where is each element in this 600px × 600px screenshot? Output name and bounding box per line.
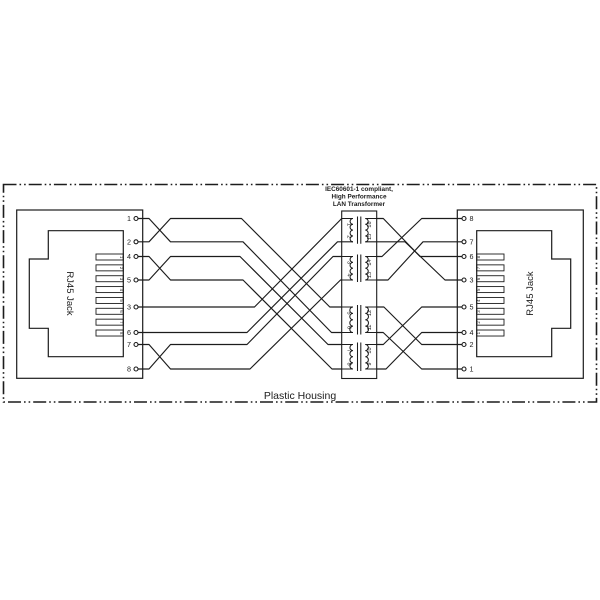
left-pin-number: 8 [127,365,131,374]
right-pin-terminal [462,255,466,259]
left-pin-terminal [134,255,138,259]
left-pin-number: 4 [127,252,131,261]
wire [138,219,342,308]
transformer-title-line1: IEC60601-1 compliant, [325,186,393,193]
core-lines [358,343,361,372]
right-pin-number: 2 [470,340,474,349]
right-pin-number: 8 [470,214,474,223]
transformer-pin-number: 3 [346,261,352,264]
core-lines [358,217,361,244]
right-pin-terminal [462,367,466,371]
core-lines [358,305,361,335]
right-jack-contacts: 87654321 [476,254,504,336]
right-pin-number: 7 [470,237,474,246]
transformer-windings: 12161534141356121178109 [342,217,377,372]
wire [138,257,342,345]
right-jack-label: RJ45 Jack [525,271,536,316]
transformer-pin-number: 12 [367,310,373,316]
transformer-title-line2: High Performance [331,193,386,200]
wire [377,333,462,370]
left-pin-terminal [134,278,138,282]
transformer-pin-number: 13 [367,272,373,278]
right-jack-connector-outline [477,231,571,357]
wire [377,219,462,257]
transformer-pin-number: 9 [367,362,373,365]
wire [138,257,342,370]
schematic-page: Plastic Housing IEC60601-1 compliant, Hi… [0,0,600,600]
plastic-housing-label: Plastic Housing [264,390,337,402]
left-pin-number: 5 [127,276,131,285]
right-pin-terminal [462,278,466,282]
right-pin-number: 6 [470,252,474,261]
wire [138,257,342,370]
wires [138,219,462,370]
left-jack-label: RJ45 Jack [64,271,75,316]
right-jack-pin-column: 87635421 [462,214,474,374]
left-pin-number: 6 [127,328,131,337]
left-pin-number: 3 [127,303,131,312]
transformer-pin-number: 7 [346,349,352,352]
left-jack [17,210,143,378]
transformer-pin-number: 10 [367,347,373,353]
right-pin-terminal [462,331,466,335]
transformer-pin-number: 14 [367,259,373,265]
right-pin-terminal [462,305,466,309]
transformer-pin-number: 1 [346,223,352,226]
core-lines [358,255,361,283]
right-pin-terminal [462,343,466,347]
wire [138,280,342,369]
left-pin-terminal [134,343,138,347]
wire [138,242,342,333]
wire [138,219,342,333]
right-pin-terminal [462,240,466,244]
transformer-title-line3: LAN Transformer [333,201,386,208]
transformer-pin-number: 11 [367,325,373,331]
wire [377,242,462,280]
left-jack-pin-column: 12453678 [127,214,138,374]
left-jack-connector-outline [29,231,123,357]
wire [138,219,342,308]
wiring-diagram: Plastic Housing IEC60601-1 compliant, Hi… [0,0,600,600]
left-pin-terminal [134,217,138,221]
left-pin-number: 1 [127,214,131,223]
wire [377,242,462,280]
plastic-housing-border [4,185,597,403]
left-pin-number: 2 [127,237,131,246]
transformer-pin-number: 15 [367,234,373,240]
transformer-title: IEC60601-1 compliant, High Performance L… [325,186,393,208]
left-pin-number: 7 [127,340,131,349]
left-pin-terminal [134,331,138,335]
transformer-pin-number: 4 [346,273,352,276]
right-jack [457,210,583,378]
left-pin-terminal [134,367,138,371]
right-pin-number: 3 [470,276,474,285]
transformer-symbol [342,343,377,372]
right-pin-terminal [462,217,466,221]
right-pin-number: 5 [470,303,474,312]
left-pin-terminal [134,240,138,244]
left-pin-terminal [134,305,138,309]
transformer-pin-number: 5 [346,311,352,314]
left-jack-contacts: 12345678 [96,254,124,336]
right-pin-number: 1 [470,365,474,374]
transformer-pin-number: 8 [346,362,352,365]
transformer-pin-number: 6 [346,326,352,329]
right-pin-number: 4 [470,328,474,337]
transformer-pin-number: 2 [346,235,352,238]
transformer-pin-number: 16 [367,221,373,227]
